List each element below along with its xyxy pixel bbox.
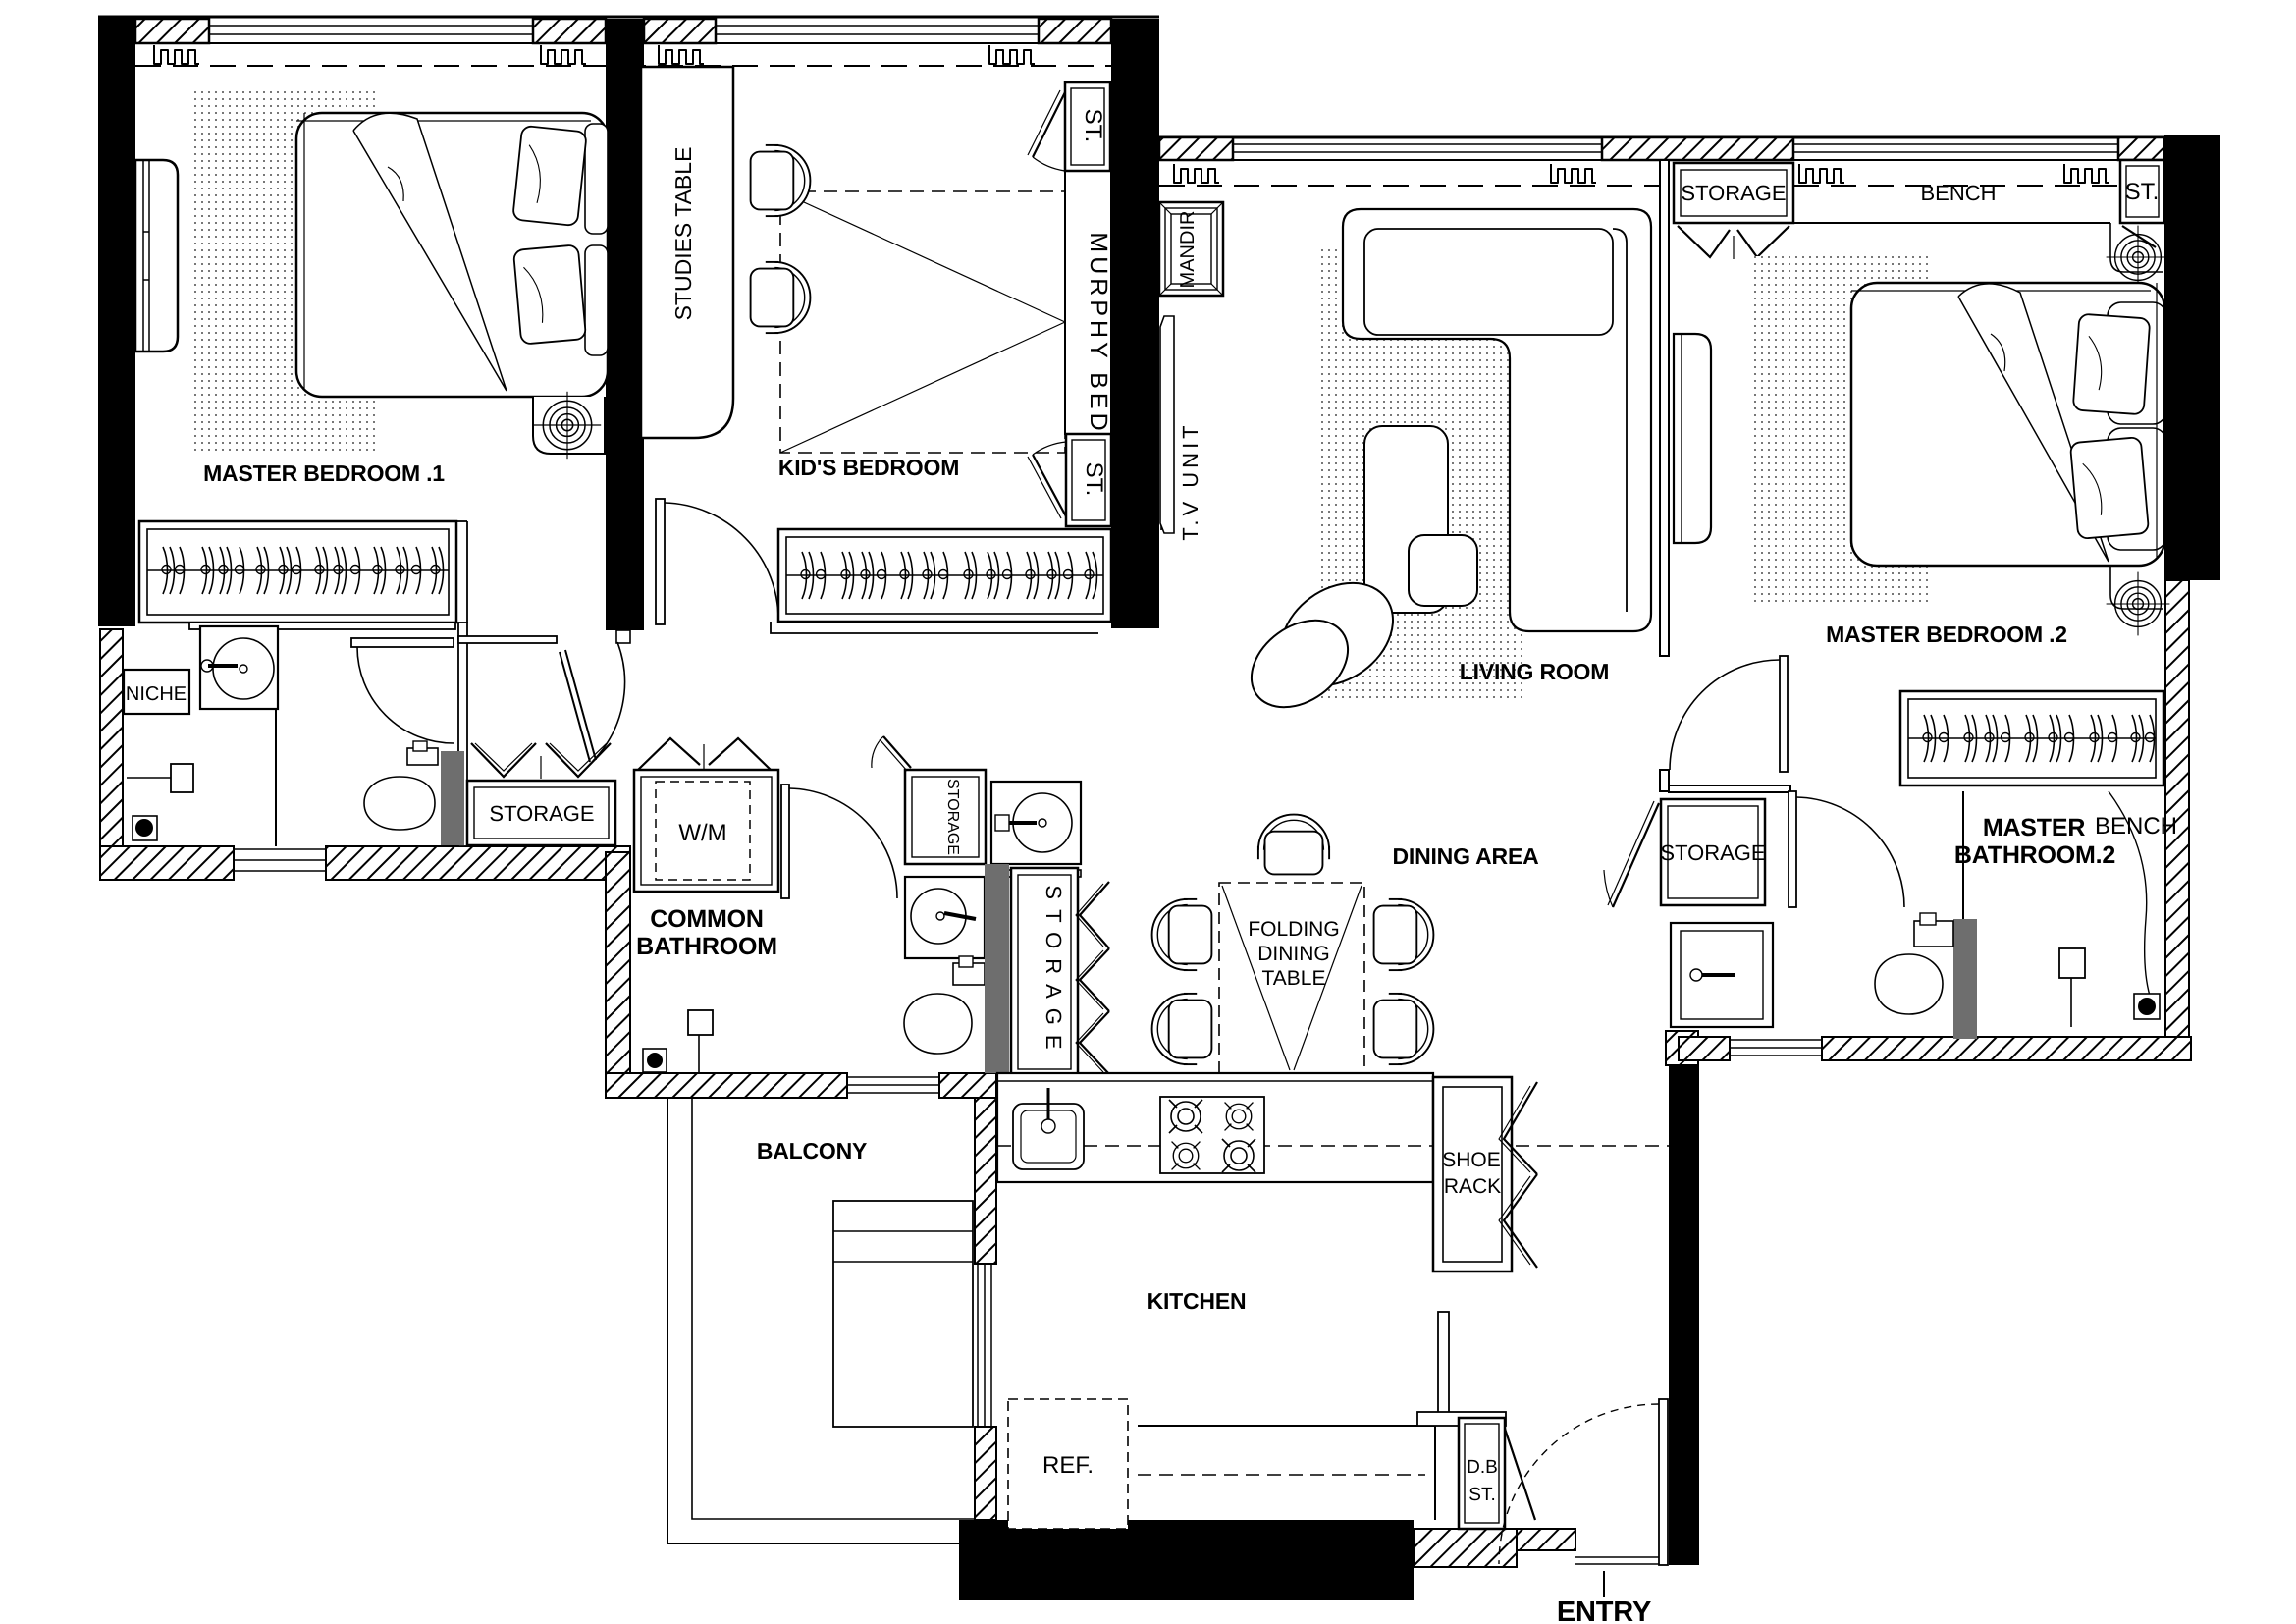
svg-text:MURPHY BED.: MURPHY BED. [1085, 232, 1112, 445]
svg-text:MANDIR: MANDIR [1177, 211, 1199, 289]
svg-text:MASTER BEDROOM .1: MASTER BEDROOM .1 [203, 460, 445, 486]
svg-text:ENTRY: ENTRY [1557, 1597, 1651, 1624]
svg-text:ST.: ST. [1081, 462, 1107, 497]
svg-text:REF.: REF. [1042, 1452, 1094, 1479]
svg-text:NICHE: NICHE [126, 683, 187, 705]
svg-text:DINING: DINING [1257, 943, 1330, 965]
svg-text:STORAGE: STORAGE [1660, 840, 1765, 865]
svg-text:RACK: RACK [1444, 1175, 1501, 1198]
svg-text:STORAGE: STORAGE [489, 801, 594, 826]
svg-text:SHOE: SHOE [1442, 1149, 1501, 1171]
svg-text:BATHROOM.2: BATHROOM.2 [1954, 841, 2115, 869]
svg-text:BENCH: BENCH [1920, 181, 1996, 205]
svg-text:BALCONY: BALCONY [757, 1138, 867, 1164]
svg-text:BATHROOM: BATHROOM [636, 933, 777, 960]
svg-text:COMMON: COMMON [650, 905, 763, 933]
svg-text:ST.: ST. [1080, 109, 1106, 143]
svg-text:STUDIES TABLE: STUDIES TABLE [670, 147, 696, 321]
svg-text:W/M: W/M [678, 820, 726, 846]
svg-text:KID'S BEDROOM: KID'S BEDROOM [778, 455, 959, 480]
svg-text:BENCH: BENCH [2095, 813, 2177, 839]
svg-text:ST.: ST. [1468, 1485, 1495, 1505]
svg-text:FOLDING: FOLDING [1248, 918, 1339, 941]
svg-text:D.B: D.B [1467, 1457, 1498, 1478]
svg-text:DINING AREA: DINING AREA [1392, 843, 1538, 869]
svg-text:LIVING ROOM: LIVING ROOM [1460, 659, 1609, 684]
svg-text:KITCHEN: KITCHEN [1148, 1288, 1247, 1314]
svg-text:STORAGE: STORAGE [944, 779, 961, 855]
svg-text:MASTER: MASTER [1983, 814, 2086, 841]
svg-text:STORAGE: STORAGE [1681, 181, 1786, 205]
svg-text:ST.: ST. [2125, 179, 2160, 205]
svg-text:STORAGE: STORAGE [1041, 885, 1066, 1058]
svg-text:T.V UNIT: T.V UNIT [1178, 421, 1202, 540]
svg-text:MASTER BEDROOM .2: MASTER BEDROOM .2 [1826, 622, 2067, 647]
svg-text:TABLE: TABLE [1262, 967, 1326, 990]
